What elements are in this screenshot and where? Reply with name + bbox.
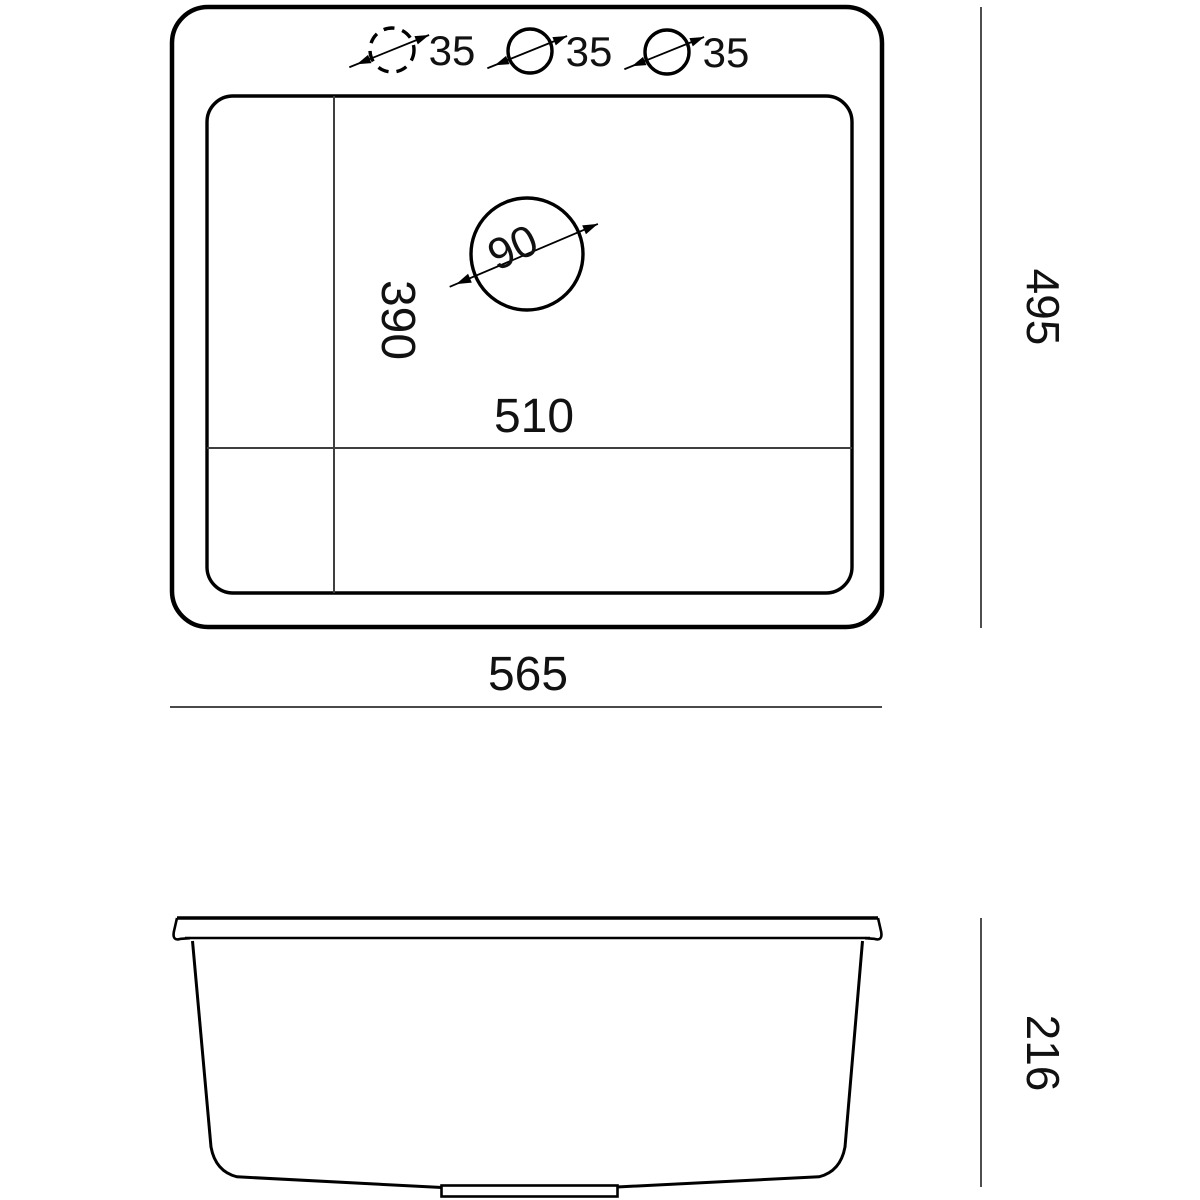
sink-technical-drawing: 35 35 35 [0, 0, 1200, 1200]
side-drain-stub [442, 1186, 618, 1197]
faucet-hole-1-diameter-label: 35 [429, 27, 476, 74]
inner-width-label: 510 [494, 390, 574, 443]
overall-width-label: 565 [488, 648, 568, 701]
faucet-hole-2-diameter-label: 35 [566, 28, 613, 75]
faucet-hole-3-diameter-label: 35 [703, 29, 750, 76]
inner-depth-label: 390 [371, 280, 424, 360]
height-label: 216 [1017, 1015, 1069, 1092]
overall-depth-label: 495 [1017, 269, 1069, 346]
